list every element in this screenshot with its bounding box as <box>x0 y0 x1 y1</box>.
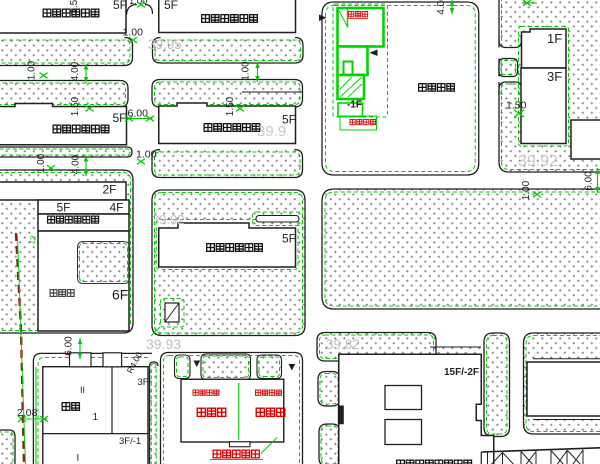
svg-text:1F: 1F <box>547 31 562 46</box>
svg-text:1: 1 <box>93 412 99 423</box>
svg-text:-1F: -1F <box>347 100 362 111</box>
svg-text:II: II <box>80 385 85 395</box>
svg-text:1.50: 1.50 <box>69 0 80 14</box>
svg-text:6.00: 6.00 <box>584 171 595 191</box>
svg-text:4.00: 4.00 <box>70 61 81 81</box>
svg-text:1.50: 1.50 <box>225 96 236 116</box>
svg-text:5F: 5F <box>282 232 296 246</box>
svg-text:1.00: 1.00 <box>136 149 157 161</box>
svg-text:5F: 5F <box>113 0 127 12</box>
svg-text:6F: 6F <box>112 287 128 303</box>
svg-text:39.92: 39.92 <box>152 212 185 227</box>
svg-text:3F: 3F <box>138 377 149 388</box>
svg-text:4.00: 4.00 <box>71 154 82 174</box>
svg-text:39.93: 39.93 <box>146 336 181 352</box>
svg-text:1.00: 1.00 <box>123 27 144 39</box>
svg-text:39.82: 39.82 <box>326 337 360 352</box>
svg-text:4F: 4F <box>110 201 124 215</box>
svg-text:3F: 3F <box>547 69 562 84</box>
svg-text:I: I <box>77 453 80 464</box>
svg-text:5F: 5F <box>113 111 127 125</box>
svg-text:1.50: 1.50 <box>70 96 81 116</box>
svg-text:6.00: 6.00 <box>64 336 75 356</box>
svg-text:4.00: 4.00 <box>436 0 447 15</box>
svg-text:1.00: 1.00 <box>241 61 252 81</box>
svg-text:1.00: 1.00 <box>36 153 47 173</box>
svg-text:5F: 5F <box>282 113 296 127</box>
svg-text:3F/-1: 3F/-1 <box>119 436 141 447</box>
svg-text:15F/-2F: 15F/-2F <box>444 367 479 378</box>
svg-text:1.00: 1.00 <box>27 60 38 80</box>
svg-text:5F: 5F <box>57 201 71 215</box>
svg-text:39.92: 39.92 <box>518 153 558 170</box>
svg-text:2F: 2F <box>103 183 117 197</box>
svg-text:5F: 5F <box>164 0 178 12</box>
svg-text:39.95: 39.95 <box>148 37 182 52</box>
svg-text:1.00: 1.00 <box>521 180 532 200</box>
